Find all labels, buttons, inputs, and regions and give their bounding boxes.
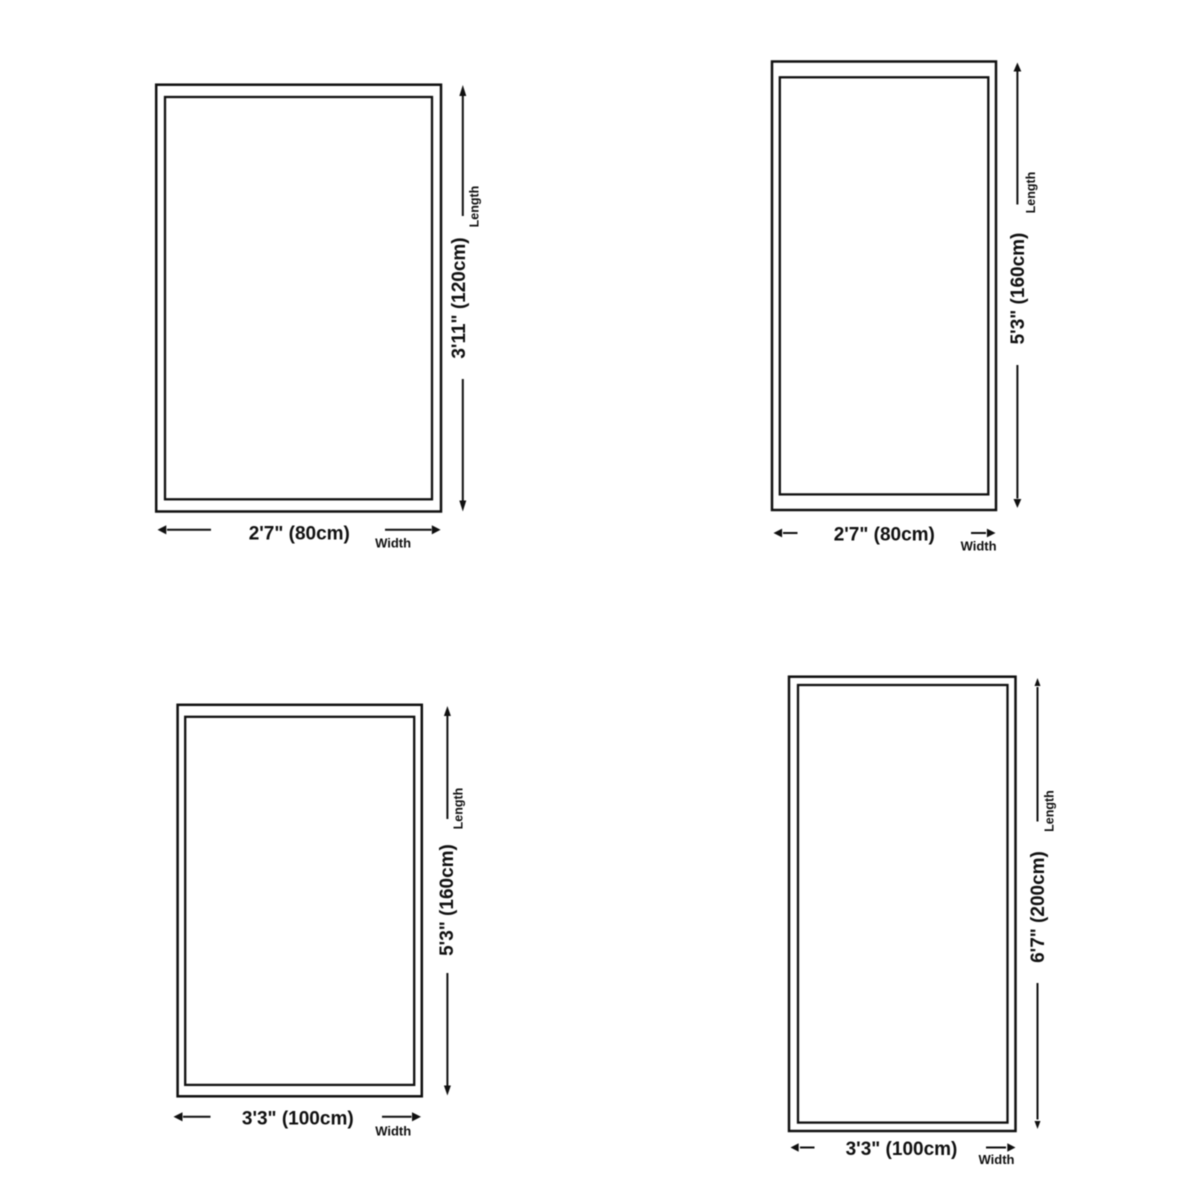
svg-text:Length: Length bbox=[1042, 790, 1056, 832]
svg-text:Length: Length bbox=[467, 186, 481, 228]
svg-text:6'7" (200cm): 6'7" (200cm) bbox=[1028, 851, 1049, 963]
svg-text:3'11" (120cm): 3'11" (120cm) bbox=[449, 237, 470, 358]
svg-text:2'7" (80cm): 2'7" (80cm) bbox=[249, 523, 350, 544]
svg-text:5'3" (160cm): 5'3" (160cm) bbox=[1008, 233, 1029, 345]
svg-text:Width: Width bbox=[961, 538, 997, 553]
svg-text:5'3" (160cm): 5'3" (160cm) bbox=[437, 844, 458, 956]
svg-text:Width: Width bbox=[375, 1124, 411, 1139]
svg-text:Width: Width bbox=[979, 1152, 1015, 1167]
svg-text:3'3" (100cm): 3'3" (100cm) bbox=[846, 1139, 958, 1160]
svg-text:2'7" (80cm): 2'7" (80cm) bbox=[834, 524, 935, 545]
svg-text:Width: Width bbox=[375, 535, 411, 550]
svg-text:Length: Length bbox=[1024, 172, 1038, 214]
svg-text:3'3" (100cm): 3'3" (100cm) bbox=[242, 1108, 354, 1129]
svg-text:Length: Length bbox=[452, 788, 466, 830]
